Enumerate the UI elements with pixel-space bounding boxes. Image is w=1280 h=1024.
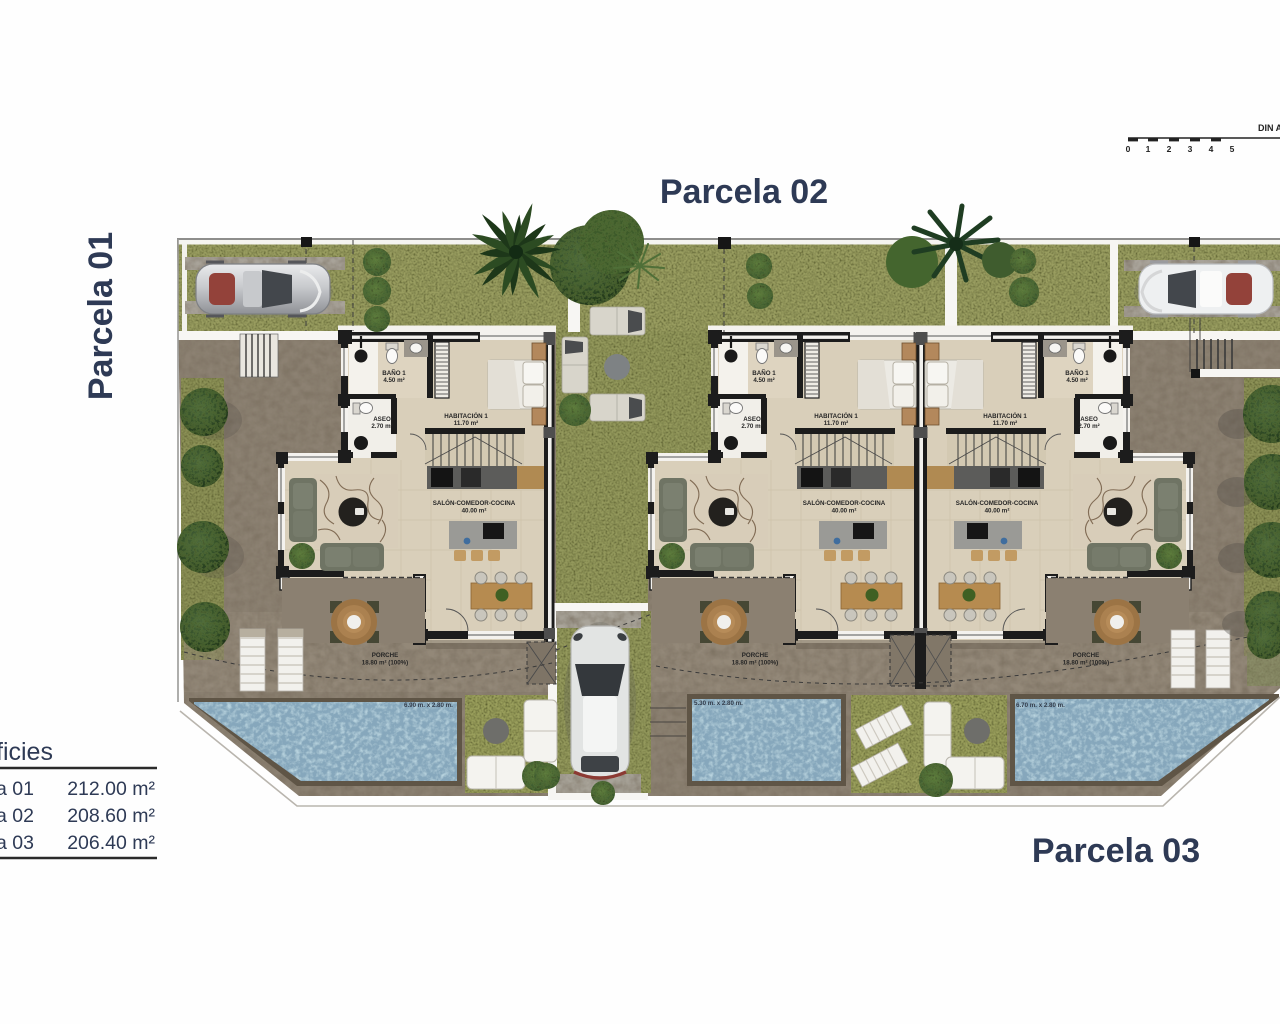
svg-text:DIN A4: DIN A4 (1258, 123, 1280, 133)
svg-text:11.70 m²: 11.70 m² (824, 420, 848, 427)
svg-text:BAÑO 1: BAÑO 1 (752, 370, 776, 377)
svg-text:a 03: a 03 (0, 832, 34, 854)
svg-text:ASEO: ASEO (743, 416, 761, 423)
svg-text:11.70 m²: 11.70 m² (993, 420, 1017, 427)
svg-text:4.50 m²: 4.50 m² (1066, 377, 1087, 384)
svg-text:18.80 m² (100%): 18.80 m² (100%) (732, 660, 778, 667)
svg-text:PORCHE: PORCHE (742, 652, 768, 659)
svg-text:5: 5 (1230, 144, 1235, 154)
svg-text:11.70 m²: 11.70 m² (454, 420, 478, 427)
svg-text:1: 1 (1146, 144, 1151, 154)
svg-text:40.00 m²: 40.00 m² (985, 508, 1010, 515)
svg-text:4.50 m²: 4.50 m² (753, 377, 774, 384)
svg-text:SALÓN-COMEDOR-COCINA: SALÓN-COMEDOR-COCINA (956, 499, 1039, 507)
svg-text:SALÓN-COMEDOR-COCINA: SALÓN-COMEDOR-COCINA (433, 499, 516, 507)
svg-text:4: 4 (1209, 144, 1214, 154)
svg-text:212.00 m²: 212.00 m² (67, 778, 155, 800)
svg-text:a 02: a 02 (0, 805, 34, 827)
svg-text:6.70 m. x 2.80 m.: 6.70 m. x 2.80 m. (1016, 702, 1065, 709)
svg-text:3: 3 (1188, 144, 1193, 154)
svg-text:206.40 m²: 206.40 m² (67, 832, 155, 854)
svg-text:2: 2 (1167, 144, 1172, 154)
svg-text:2.70 m²: 2.70 m² (1078, 423, 1099, 430)
svg-text:PORCHE: PORCHE (372, 652, 398, 659)
svg-text:BAÑO 1: BAÑO 1 (1065, 370, 1089, 377)
svg-text:5.30 m. x 2.80 m.: 5.30 m. x 2.80 m. (694, 700, 743, 707)
svg-text:ASEO: ASEO (373, 416, 391, 423)
svg-text:HABITACIÓN 1: HABITACIÓN 1 (983, 412, 1027, 420)
svg-text:40.00 m²: 40.00 m² (832, 508, 857, 515)
svg-text:Parcela 01: Parcela 01 (82, 232, 120, 400)
svg-text:SALÓN-COMEDOR-COCINA: SALÓN-COMEDOR-COCINA (803, 499, 886, 507)
svg-text:0: 0 (1126, 144, 1131, 154)
svg-text:ficies: ficies (0, 738, 53, 766)
svg-text:4.50 m²: 4.50 m² (383, 377, 404, 384)
svg-text:18.80 m² (100%): 18.80 m² (100%) (1063, 660, 1109, 667)
svg-text:2.70 m²: 2.70 m² (371, 423, 392, 430)
svg-text:Parcela 03: Parcela 03 (1032, 832, 1200, 870)
svg-text:PORCHE: PORCHE (1073, 652, 1099, 659)
svg-text:208.60 m²: 208.60 m² (67, 805, 155, 827)
svg-text:2.70 m²: 2.70 m² (741, 423, 762, 430)
svg-text:ASEO: ASEO (1080, 416, 1098, 423)
svg-text:a 01: a 01 (0, 778, 34, 800)
svg-text:40.00 m²: 40.00 m² (462, 508, 487, 515)
svg-text:6.90 m. x 2.80 m.: 6.90 m. x 2.80 m. (404, 702, 453, 709)
svg-text:Parcela 02: Parcela 02 (660, 173, 828, 211)
svg-text:HABITACIÓN 1: HABITACIÓN 1 (444, 412, 488, 420)
svg-text:BAÑO 1: BAÑO 1 (382, 370, 406, 377)
svg-text:HABITACIÓN 1: HABITACIÓN 1 (814, 412, 858, 420)
svg-text:18.80 m² (100%): 18.80 m² (100%) (362, 660, 408, 667)
